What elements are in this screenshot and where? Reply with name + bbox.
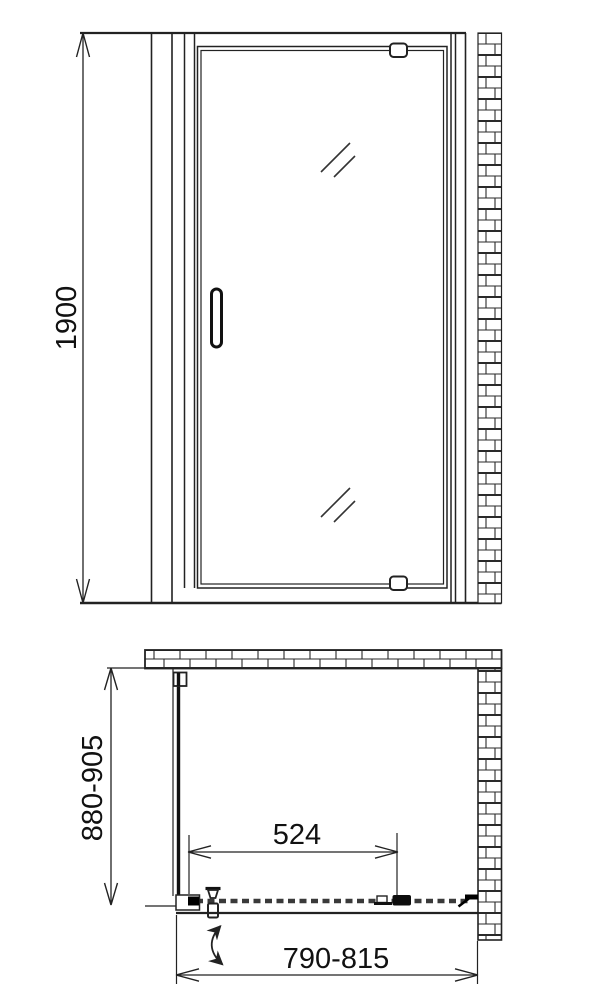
door-handle: [212, 289, 222, 347]
top-pivot-hinge: [390, 44, 407, 58]
height-dimension-label: 1900: [51, 286, 83, 351]
door-swing-arc: [212, 926, 223, 965]
track-mid-bracket: [374, 896, 392, 904]
interior-width-dimension-label: 524: [273, 819, 321, 851]
plan-view: [105, 650, 502, 984]
corner-bracket-block: [188, 897, 199, 906]
bottom-pivot-hinge: [390, 577, 407, 591]
brick-wall-plan-right: [478, 669, 502, 941]
technical-drawing-canvas: 1900: [0, 0, 602, 998]
shower-door-drawing: 1900: [0, 0, 602, 998]
brick-wall-plan-top: [145, 650, 502, 669]
brick-wall-elevation: [478, 33, 502, 603]
depth-dimension: [105, 668, 177, 906]
depth-dimension-label: 880-905: [77, 735, 109, 841]
elevation-view: [77, 33, 502, 603]
overall-width-dimension-label: 790-815: [283, 943, 389, 975]
glass-door-panel-outer: [198, 47, 448, 589]
track-roller-block: [393, 895, 412, 906]
